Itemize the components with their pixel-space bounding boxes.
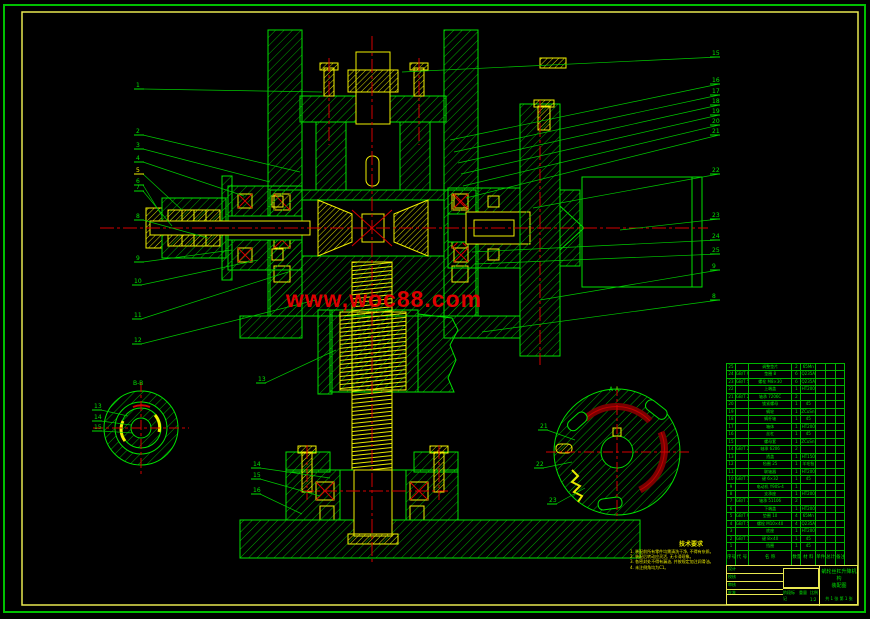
bom-cell: 2 — [792, 446, 801, 453]
bom-cell: 蜗杆轴 — [749, 416, 793, 423]
bom-cell — [836, 506, 845, 513]
bom-cell — [816, 491, 826, 498]
bom-cell: 21 — [727, 394, 736, 401]
bom-cell — [836, 484, 845, 491]
bom-cell — [826, 484, 836, 491]
bom-cell — [836, 476, 845, 483]
bom-cell — [836, 521, 845, 528]
motor-outline — [582, 177, 702, 287]
bom-cell — [826, 521, 836, 528]
bom-cell — [816, 521, 826, 528]
bom-cell: 2 — [792, 364, 801, 371]
bom-cell: 24 — [727, 371, 736, 378]
bom-row: 6下端盖1HT200 — [727, 506, 845, 513]
balloon-number: 10 — [134, 278, 142, 285]
bom-cell — [826, 424, 836, 431]
weight-label: 重量 — [799, 590, 809, 596]
bom-cell — [816, 431, 826, 438]
bom-table: 25调整垫片265Mn24GB/T 97.1垫圈 86Q235A23GB/T 5… — [726, 363, 845, 565]
balloon-number: 22 — [536, 461, 544, 468]
scale-label: 比例 — [810, 590, 819, 596]
bom-cell: 14 — [727, 446, 736, 453]
cad-sheet: B-B A-A 12345678910111213141516131415151… — [0, 0, 870, 619]
bom-cell: 13 — [727, 454, 736, 461]
balloon-number: 3 — [136, 142, 140, 149]
bom-cell — [736, 528, 749, 535]
bom-cell — [836, 498, 845, 505]
bom-cell: 键 6×32 — [749, 476, 793, 483]
balloon-number: 23 — [712, 212, 720, 219]
bom-cell: ZCuSn10P1 — [801, 409, 816, 416]
bom-cell — [826, 543, 836, 550]
bom-cell: 1 — [792, 528, 801, 535]
bom-row: 14GB/T 276轴承 62062 — [727, 446, 845, 453]
bom-row: 4GB/T 5783螺栓 M10×404Q235A — [727, 521, 845, 528]
bom-cell: 19 — [727, 409, 736, 416]
bom-row: 8支承座1HT200 — [727, 491, 845, 498]
stage-label: 阶段标记 — [783, 590, 797, 602]
bom-cell — [816, 401, 826, 408]
bom-cell — [836, 409, 845, 416]
tech-notes: 技术要求 1. 装配前所有零件均需清洗干净, 不得有杂质。 2. 装配后转动应灵… — [630, 539, 752, 570]
bom-cell — [826, 401, 836, 408]
balloon-number: 7 — [136, 184, 140, 191]
section-view-aa: A-A — [546, 386, 690, 520]
bom-cell: 螺栓 M8×30 — [749, 379, 793, 386]
bom-cell: GB/T 93 — [736, 513, 749, 520]
bom-cell — [836, 424, 845, 431]
balloon-number: 9 — [136, 255, 140, 262]
bom-row: 3底座1HT200 — [727, 528, 845, 535]
bom-cell: 箱体 — [749, 424, 793, 431]
bom-cell — [826, 409, 836, 416]
bom-cell — [816, 394, 826, 401]
balloon-number: 13 — [258, 376, 266, 383]
base-plate — [240, 520, 640, 558]
bom-cell — [826, 454, 836, 461]
balloon-number: 5 — [136, 167, 140, 174]
bom-cell: 65Mn — [801, 513, 816, 520]
sheet-info: 共 1 张 第 1 张 — [820, 596, 858, 602]
bom-cell: 1 — [792, 506, 801, 513]
bom-cell: 轴承 7206C — [749, 394, 793, 401]
bom-row: 11联轴器1HT200 — [727, 469, 845, 476]
bom-cell: 3 — [727, 528, 736, 535]
bom-cell: 22 — [727, 386, 736, 393]
bom-cell: GB/T 5783 — [736, 521, 749, 528]
bom-cell — [801, 446, 816, 453]
bom-cell — [836, 371, 845, 378]
bom-cell — [736, 454, 749, 461]
bom-cell: 17 — [727, 424, 736, 431]
bom-header-cell: 总计 — [826, 551, 836, 566]
bom-cell — [816, 543, 826, 550]
bom-cell: GB/T 5782 — [736, 379, 749, 386]
bom-cell — [826, 371, 836, 378]
bom-header-cell: 单件 — [816, 551, 826, 566]
balloon-number: 15 — [94, 424, 102, 431]
bom-cell: 12 — [727, 461, 736, 468]
bom-cell — [816, 424, 826, 431]
bom-cell — [826, 506, 836, 513]
bom-row: 16丝杠145 — [727, 431, 845, 438]
bom-cell: 11 — [727, 469, 736, 476]
balloon-number: 19 — [712, 108, 720, 115]
bom-cell: 透盖 — [749, 454, 793, 461]
bom-cell: 1 — [792, 543, 801, 550]
bom-cell: 螺栓 M10×40 — [749, 521, 793, 528]
bom-cell: 联轴器 — [749, 469, 793, 476]
title-block: 设计 校核 审核 批准 阶段标记 重量 比例 1:2 蜗轮丝杠升降机构 装配图 … — [726, 565, 858, 605]
bom-cell: HT150 — [801, 454, 816, 461]
bom-cell: 2 — [792, 498, 801, 505]
bom-cell — [736, 401, 749, 408]
bom-cell: 45 — [801, 431, 816, 438]
section-view-bb: B-B — [93, 380, 189, 474]
bom-cell — [826, 364, 836, 371]
balloon-number: 2 — [136, 128, 140, 135]
bom-cell — [826, 431, 836, 438]
bom-cell — [736, 491, 749, 498]
balloon-number: 20 — [712, 118, 720, 125]
bom-cell: GB/T 1096 — [736, 476, 749, 483]
bom-cell — [826, 513, 836, 520]
bom-header-cell: 名 称 — [749, 551, 793, 566]
bom-cell: 23 — [727, 379, 736, 386]
bom-cell: GB/T 97.1 — [736, 371, 749, 378]
bom-cell — [816, 364, 826, 371]
bom-cell — [836, 446, 845, 453]
bom-cell: 挡圈 — [749, 543, 793, 550]
bom-cell: 1 — [792, 431, 801, 438]
watermark: www,woc88.com — [286, 286, 482, 313]
bom-cell: 毡圈 25 — [749, 461, 793, 468]
bom-cell — [836, 469, 845, 476]
bom-cell: 羊毛毡 — [801, 461, 816, 468]
bom-cell: 25 — [727, 364, 736, 371]
bom-cell: 1 — [792, 439, 801, 446]
bom-cell: 1 — [792, 491, 801, 498]
balloon-number: 23 — [549, 497, 557, 504]
bom-cell — [836, 386, 845, 393]
bom-row: 13透盖1HT150 — [727, 454, 845, 461]
bom-cell: 1 — [792, 386, 801, 393]
bom-row: 5GB/T 93垫圈 10465Mn — [727, 513, 845, 520]
bom-cell: 垫圈 10 — [749, 513, 793, 520]
balloon-number: 24 — [712, 233, 720, 240]
bom-cell — [736, 469, 749, 476]
bom-cell: 2 — [792, 394, 801, 401]
note-line: 4. 未注倒角均为C1。 — [630, 565, 752, 570]
bom-cell: 1 — [792, 536, 801, 543]
bom-cell: 1 — [792, 424, 801, 431]
bom-cell — [836, 543, 845, 550]
bom-cell: 65Mn — [801, 364, 816, 371]
scale-value: 1:2 — [810, 597, 819, 602]
balloon-number: 18 — [712, 98, 720, 105]
bom-cell — [826, 446, 836, 453]
bom-cell — [836, 379, 845, 386]
bom-cell: 20 — [727, 401, 736, 408]
bom-cell: 6 — [792, 379, 801, 386]
section-label-bb: B-B — [133, 380, 143, 387]
bom-cell — [816, 454, 826, 461]
bom-cell — [836, 528, 845, 535]
bom-cell: HT200 — [801, 506, 816, 513]
notes-title: 技术要求 — [630, 539, 752, 548]
bom-row: 24GB/T 97.1垫圈 86Q235A — [727, 371, 845, 378]
balloon-number: 15 — [712, 50, 720, 57]
bom-cell: Q235A — [801, 521, 816, 528]
bom-cell — [736, 506, 749, 513]
bom-row: 21GB/T 292轴承 7206C2 — [727, 394, 845, 401]
signature-rows: 设计 校核 审核 批准 — [727, 566, 783, 594]
bom-cell: 丝杠 — [749, 431, 793, 438]
bom-row: 23GB/T 5782螺栓 M8×306Q235A — [727, 379, 845, 386]
bom-cell: 1 — [792, 416, 801, 423]
bom-row: 17箱体1HT200 — [727, 424, 845, 431]
bom-cell — [836, 461, 845, 468]
bom-cell: 4 — [727, 521, 736, 528]
drawing-number-box — [783, 568, 819, 588]
bom-cell — [801, 484, 816, 491]
bom-cell: 上端盖 — [749, 386, 793, 393]
bom-cell: 8 — [727, 491, 736, 498]
balloon-number: 12 — [134, 337, 142, 344]
bom-cell: 5 — [727, 513, 736, 520]
bom-cell: 1 — [792, 461, 801, 468]
bom-cell: 1 — [792, 469, 801, 476]
bom-cell — [816, 528, 826, 535]
screw-bottom-cap — [348, 534, 398, 544]
bom-cell: 15 — [727, 439, 736, 446]
bom-cell: 45 — [801, 536, 816, 543]
bom-cell: 电动机 Y90S-4 — [749, 484, 793, 491]
bom-cell — [836, 416, 845, 423]
bom-cell — [826, 416, 836, 423]
bom-cell — [816, 439, 826, 446]
bom-cell: 底座 — [749, 528, 793, 535]
bom-cell: HT200 — [801, 528, 816, 535]
bom-cell: 7 — [727, 498, 736, 505]
bom-cell — [736, 424, 749, 431]
bom-row: 9电动机 Y90S-41 — [727, 484, 845, 491]
bom-row: 20锁紧螺母145 — [727, 401, 845, 408]
bom-cell: 轴承 6206 — [749, 446, 793, 453]
balloon-number: 1 — [136, 82, 140, 89]
bom-cell: 锁紧螺母 — [749, 401, 793, 408]
bom-cell — [816, 476, 826, 483]
bom-cell: 调整垫片 — [749, 364, 793, 371]
doc-type: 装配图 — [820, 582, 858, 589]
bom-cell: GB/T 301 — [736, 498, 749, 505]
balloon-number: 4 — [136, 155, 140, 162]
product-title: 蜗轮丝杠升降机构 — [820, 568, 858, 582]
bom-cell: 6 — [792, 371, 801, 378]
bom-cell: HT200 — [801, 424, 816, 431]
bom-cell: HT200 — [801, 386, 816, 393]
bom-cell — [836, 536, 845, 543]
bom-cell: 1 — [792, 454, 801, 461]
bom-cell — [816, 446, 826, 453]
bom-cell — [836, 454, 845, 461]
section-label-aa: A-A — [609, 386, 620, 393]
bom-header-cell: 材 料 — [801, 551, 816, 566]
bom-cell — [736, 364, 749, 371]
balloon-number: 14 — [94, 414, 102, 421]
bom-cell — [826, 439, 836, 446]
bom-cell: 垫圈 8 — [749, 371, 793, 378]
bom-cell: 4 — [792, 513, 801, 520]
bom-cell — [736, 386, 749, 393]
bom-cell: 45 — [801, 401, 816, 408]
bom-cell: 10 — [727, 476, 736, 483]
bom-cell — [826, 386, 836, 393]
bom-row: 19蜗轮1ZCuSn10P1 — [727, 409, 845, 416]
bom-cell — [816, 371, 826, 378]
bom-cell: Q235A — [801, 371, 816, 378]
right-shaft-assembly — [448, 58, 702, 356]
bom-cell: 45 — [801, 416, 816, 423]
bom-cell: 6 — [727, 506, 736, 513]
bom-cell: 1 — [792, 476, 801, 483]
bom-row: 10GB/T 1096键 6×32145 — [727, 476, 845, 483]
bom-cell: 键 8×40 — [749, 536, 793, 543]
balloon-number: 21 — [712, 128, 720, 135]
bom-cell — [826, 476, 836, 483]
bom-cell: 45 — [801, 476, 816, 483]
balloon-number: 25 — [712, 247, 720, 254]
bom-cell — [816, 409, 826, 416]
bom-cell — [816, 498, 826, 505]
bom-cell — [836, 364, 845, 371]
bom-cell: HT200 — [801, 491, 816, 498]
bom-cell — [836, 439, 845, 446]
bom-cell: 螺母套 — [749, 439, 793, 446]
balloon-number: 17 — [712, 88, 720, 95]
bom-cell — [836, 431, 845, 438]
bom-cell — [816, 469, 826, 476]
bom-cell — [826, 498, 836, 505]
bom-cell — [816, 506, 826, 513]
bom-row: 22上端盖1HT200 — [727, 386, 845, 393]
bom-cell — [736, 439, 749, 446]
bom-cell — [836, 491, 845, 498]
bom-cell: 4 — [792, 521, 801, 528]
bom-cell: HT200 — [801, 469, 816, 476]
bom-cell — [816, 513, 826, 520]
bom-cell — [816, 461, 826, 468]
bom-row: 12毡圈 251羊毛毡 — [727, 461, 845, 468]
bom-cell — [816, 536, 826, 543]
balloon-number: 16 — [253, 487, 261, 494]
bom-cell: 1 — [792, 409, 801, 416]
bom-cell: GB/T 292 — [736, 394, 749, 401]
balloon-number: 8 — [712, 293, 716, 300]
bom-cell: 轴承 51106 — [749, 498, 793, 505]
bom-cell: 18 — [727, 416, 736, 423]
bom-row: 15螺母套1ZCuSn10P1 — [727, 439, 845, 446]
bom-cell: 1 — [792, 484, 801, 491]
torn-housing-edge — [418, 314, 458, 392]
bom-cell: GB/T 276 — [736, 446, 749, 453]
bom-cell — [816, 379, 826, 386]
bom-header-cell: 数量 — [792, 551, 801, 566]
balloon-number: 8 — [136, 213, 140, 220]
bom-cell — [801, 498, 816, 505]
bom-cell — [736, 484, 749, 491]
balloon-number: 16 — [712, 77, 720, 84]
balloon-number: 22 — [712, 167, 720, 174]
bom-cell — [801, 394, 816, 401]
bom-cell — [736, 461, 749, 468]
bom-cell — [826, 491, 836, 498]
bom-row: 25调整垫片265Mn — [727, 364, 845, 371]
bom-cell — [826, 528, 836, 535]
bom-cell — [826, 379, 836, 386]
bom-cell — [816, 484, 826, 491]
bom-cell: 下端盖 — [749, 506, 793, 513]
balloon-number: 15 — [253, 472, 261, 479]
bom-cell — [836, 401, 845, 408]
balloon-number: 9 — [712, 263, 716, 270]
bom-row: 7GB/T 301轴承 511062 — [727, 498, 845, 505]
bom-cell: 支承座 — [749, 491, 793, 498]
bom-cell: Q235A — [801, 379, 816, 386]
bom-row: 18蜗杆轴145 — [727, 416, 845, 423]
balloon-number: 13 — [94, 403, 102, 410]
balloon-number: 14 — [253, 461, 261, 468]
bom-cell — [736, 416, 749, 423]
bom-cell — [826, 469, 836, 476]
balloon-number: 21 — [540, 423, 548, 430]
bom-header-cell: 备注 — [836, 551, 845, 566]
bom-cell: 16 — [727, 431, 736, 438]
bom-cell — [826, 536, 836, 543]
bom-cell: 1 — [792, 401, 801, 408]
bom-cell — [736, 431, 749, 438]
lock-nut — [348, 70, 398, 92]
balloon-number: 11 — [134, 312, 142, 319]
bom-cell — [826, 394, 836, 401]
bom-cell — [836, 513, 845, 520]
bom-cell: 45 — [801, 543, 816, 550]
bom-cell — [826, 461, 836, 468]
bom-cell — [836, 394, 845, 401]
bom-cell: 蜗轮 — [749, 409, 793, 416]
bom-cell — [816, 416, 826, 423]
bom-cell — [816, 386, 826, 393]
bom-cell: ZCuSn10P1 — [801, 439, 816, 446]
bom-cell: 9 — [727, 484, 736, 491]
bom-cell — [736, 409, 749, 416]
